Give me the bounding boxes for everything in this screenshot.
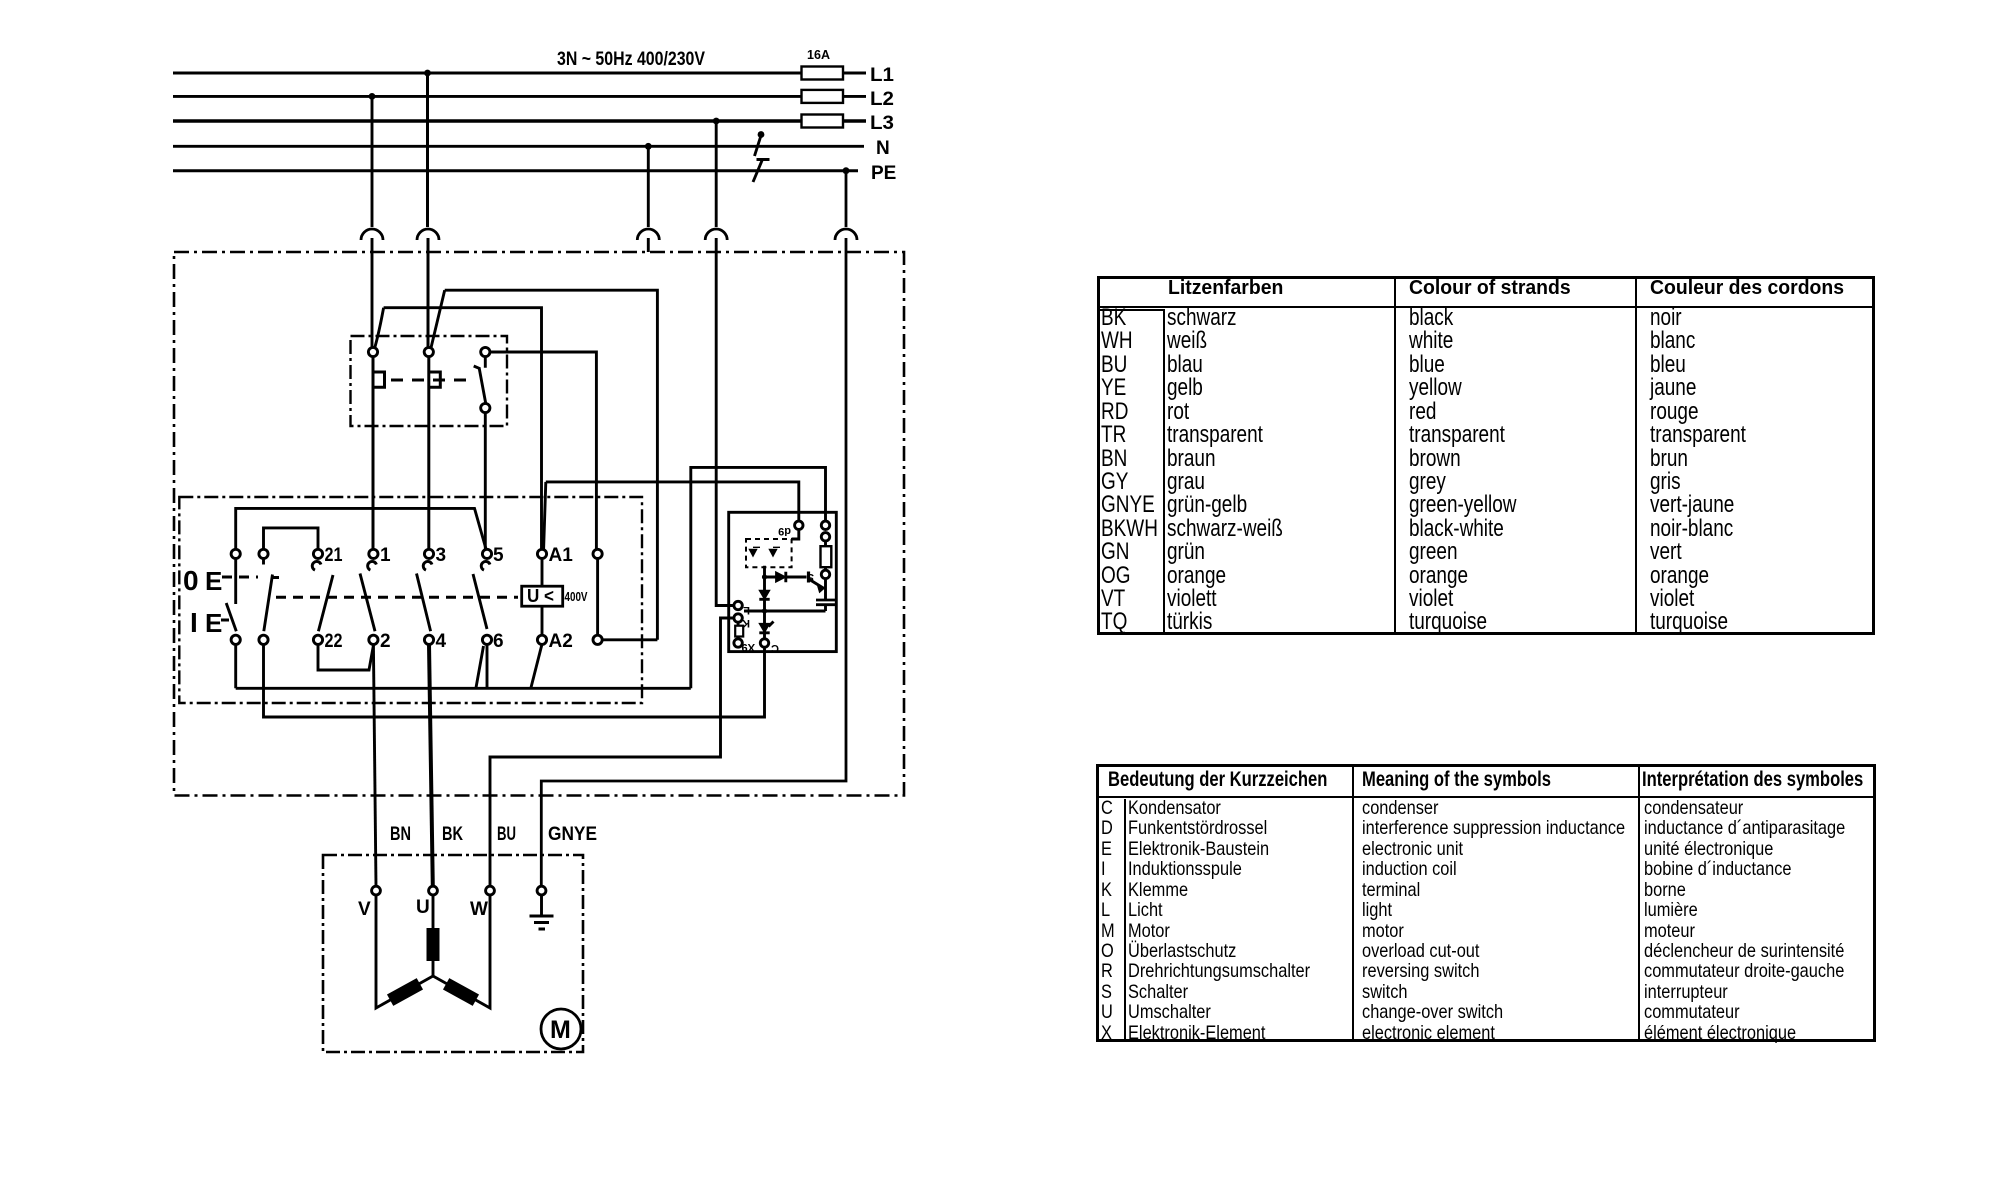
svg-text:PE: PE	[871, 163, 896, 184]
svg-text:X9: X9	[742, 641, 755, 653]
svg-text:A1: A1	[549, 545, 574, 566]
svg-text:M: M	[550, 1016, 571, 1044]
svg-text:BN: BN	[390, 824, 411, 845]
svg-text:16A: 16A	[807, 47, 831, 62]
svg-text:I: I	[190, 607, 198, 638]
svg-text:400V: 400V	[565, 590, 589, 604]
svg-text:3: 3	[436, 545, 447, 566]
svg-text:21: 21	[325, 545, 343, 566]
svg-text:L1: L1	[870, 65, 894, 86]
svg-text:2: 2	[380, 631, 391, 652]
svg-text:BK: BK	[442, 824, 463, 845]
svg-text:GNYE: GNYE	[548, 824, 597, 845]
svg-text:E: E	[205, 608, 222, 638]
svg-text:V: V	[358, 899, 371, 920]
svg-text:U <: U <	[527, 586, 554, 606]
svg-text:5: 5	[493, 545, 504, 566]
svg-text:L3: L3	[870, 113, 894, 134]
svg-text:C: C	[771, 642, 779, 654]
svg-text:22: 22	[325, 631, 343, 652]
svg-text:S: S	[807, 571, 814, 583]
svg-text:A2: A2	[549, 631, 573, 652]
svg-text:W: W	[470, 899, 488, 920]
svg-text:E: E	[205, 566, 222, 596]
svg-text:d9: d9	[778, 525, 791, 537]
svg-text:3N ~ 50Hz 400/230V: 3N ~ 50Hz 400/230V	[557, 49, 705, 70]
svg-text:U: U	[416, 897, 430, 918]
svg-text:L2: L2	[870, 89, 894, 110]
svg-text:0: 0	[183, 565, 199, 596]
svg-text:6: 6	[493, 631, 504, 652]
svg-text:K: K	[742, 617, 750, 629]
svg-text:L: L	[743, 604, 750, 616]
svg-text:4: 4	[436, 631, 447, 652]
svg-text:N: N	[876, 138, 890, 159]
svg-text:1: 1	[380, 545, 391, 566]
svg-text:BU: BU	[497, 824, 516, 845]
